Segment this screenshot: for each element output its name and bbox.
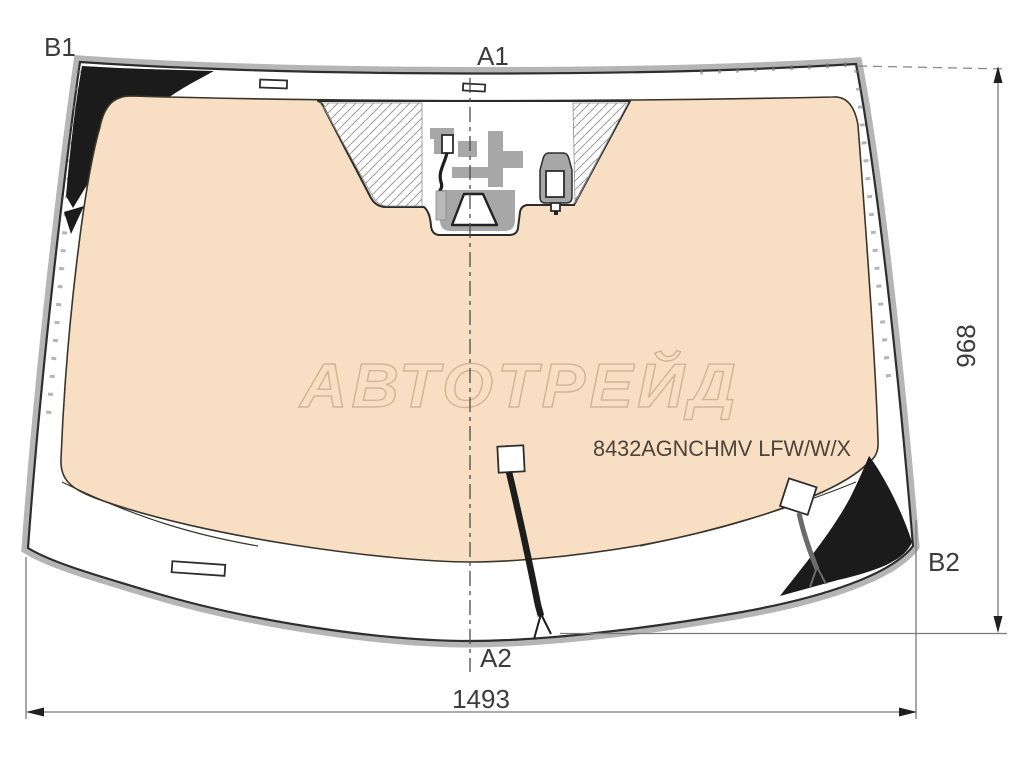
height-dim-value: 968	[951, 324, 981, 367]
part-number-text: 8432AGNCHMV LFW/W/X	[593, 436, 851, 461]
label-a2: A2	[480, 643, 512, 673]
slot-top-left	[260, 80, 287, 89]
label-b1: B1	[44, 32, 76, 62]
label-a1: A1	[477, 41, 509, 71]
watermark-text: АВТОТРЕЙД	[298, 350, 740, 421]
bracket-connector-slot	[442, 135, 453, 153]
height-ext-top	[858, 66, 1007, 69]
bracket-wire-terminal	[436, 191, 446, 220]
diagram-canvas: АВТОТРЕЙД 8432AGNCHMV LFW/W/X	[0, 0, 1024, 768]
label-b2: B2	[928, 547, 960, 577]
windshield-diagram: АВТОТРЕЙД 8432AGNCHMV LFW/W/X	[0, 0, 1024, 768]
slot-top-center	[463, 83, 485, 91]
width-dim-value: 1493	[452, 684, 510, 714]
